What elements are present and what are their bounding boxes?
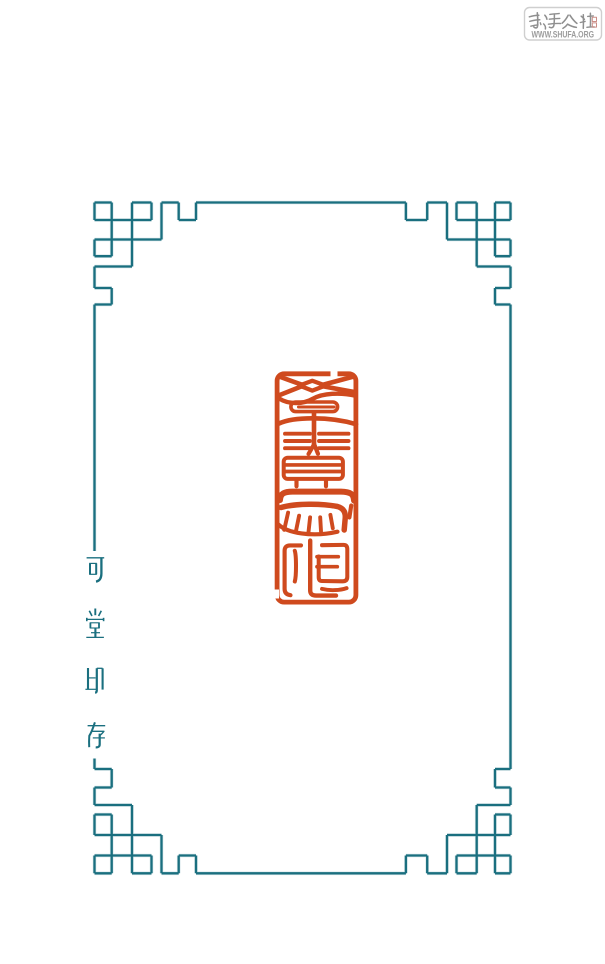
svg-text:WWW.SHUFA.ORG: WWW.SHUFA.ORG bbox=[532, 29, 595, 39]
